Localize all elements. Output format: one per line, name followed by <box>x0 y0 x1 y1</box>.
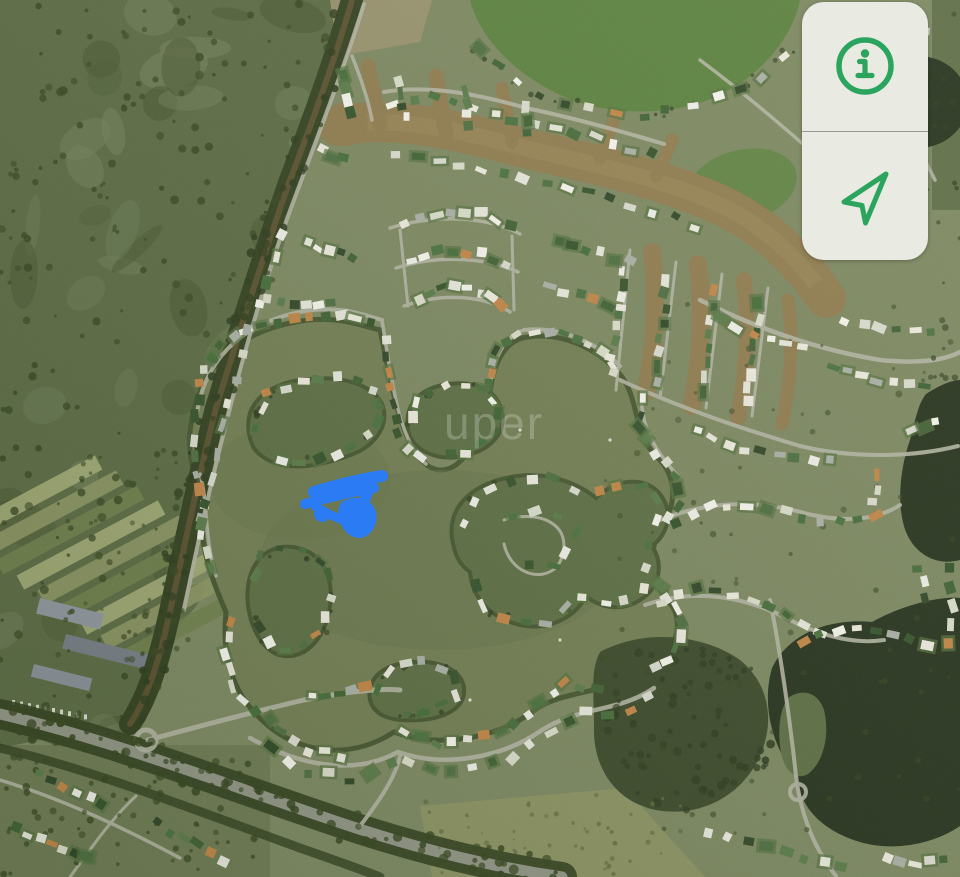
map-viewport[interactable]: uper <box>0 0 960 877</box>
navigate-arrow-icon <box>834 165 896 227</box>
info-button[interactable] <box>802 2 928 131</box>
info-icon <box>833 34 897 98</box>
map-controls-panel <box>802 2 928 260</box>
locate-button[interactable] <box>802 132 928 261</box>
